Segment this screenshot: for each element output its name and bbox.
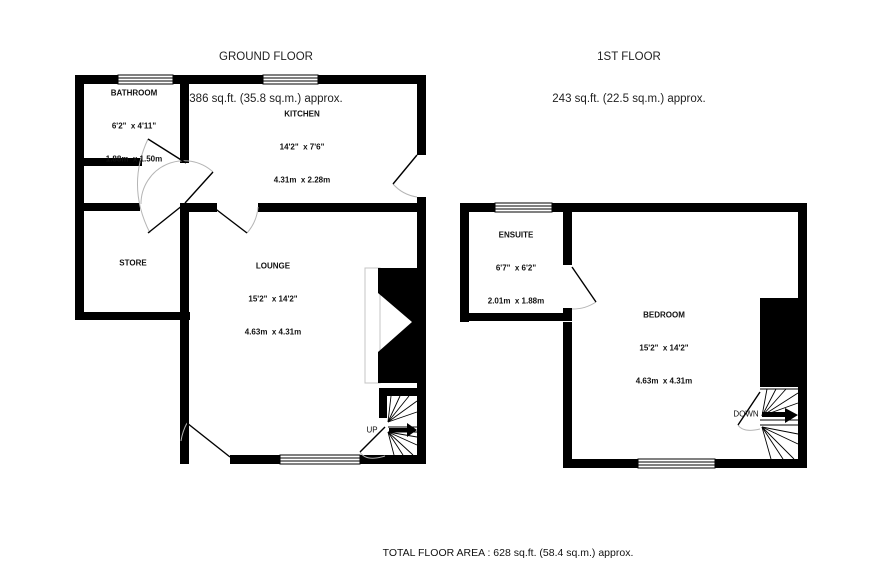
room-label-bedroom: BEDROOM 15'2" x 14'2" 4.63m x 4.31m — [636, 288, 692, 409]
stair-arrow-head — [407, 423, 417, 437]
room-label-store: STORE — [119, 236, 146, 291]
wall-ensuite-stub — [563, 308, 572, 321]
chimney-breast — [365, 268, 426, 383]
wall-left — [75, 75, 84, 320]
floorplan-page: GROUND FLOOR 386 sq.ft. (35.8 sq.m.) app… — [0, 0, 886, 574]
window — [263, 75, 318, 84]
wall-right-upper — [417, 75, 426, 155]
wall-bedroom-west — [563, 322, 572, 468]
chimney-breast — [760, 298, 798, 387]
room-dim-imperial: 14'2" x 7'6" — [274, 142, 330, 153]
wall-stair-top — [379, 388, 425, 396]
first-floor-title-text: 1ST FLOOR — [552, 50, 705, 64]
room-name: LOUNGE — [245, 261, 301, 272]
room-dim-metric: 4.63m x 4.31m — [245, 327, 301, 338]
room-dim-metric: 1.88m x 1.50m — [106, 154, 162, 165]
room-dim-metric: 2.01m x 1.88m — [488, 296, 544, 307]
wall-bathroom-divider — [180, 75, 189, 163]
wall-right — [798, 203, 807, 468]
chimney-solid — [378, 268, 426, 383]
wall-bottom-stub — [181, 455, 189, 464]
stair-arrow-head — [785, 408, 798, 423]
wall-store-bottom — [75, 312, 190, 320]
room-dim-imperial: 15'2" x 14'2" — [245, 294, 301, 305]
stair-label-down: DOWN — [733, 410, 758, 419]
stair-arrow-shaft — [762, 412, 785, 417]
wall-bottom-right — [360, 455, 425, 464]
footer: TOTAL FLOOR AREA : 628 sq.ft. (58.4 sq.m… — [383, 511, 634, 574]
window — [280, 455, 360, 464]
wall-bottom-right — [715, 459, 807, 468]
wall-bottom-left — [563, 459, 638, 468]
staircase-down — [760, 389, 798, 459]
room-dim-imperial: 15'2" x 14'2" — [636, 343, 692, 354]
wall-left — [460, 203, 469, 322]
wall-ensuite-right — [563, 203, 572, 265]
first-floor-area-text: 243 sq.ft. (22.5 sq.m.) approx. — [552, 92, 705, 106]
wall-lounge-west — [180, 203, 189, 464]
window — [638, 459, 715, 468]
room-label-lounge: LOUNGE 15'2" x 14'2" 4.63m x 4.31m — [245, 239, 301, 360]
hearth-outline — [365, 268, 380, 383]
room-label-kitchen: KITCHEN 14'2" x 7'6" 4.31m x 2.28m — [274, 87, 330, 208]
room-dim-imperial: 6'7" x 6'2" — [488, 263, 544, 274]
ground-floor-title-text: GROUND FLOOR — [189, 50, 342, 64]
first-floor-title: 1ST FLOOR 243 sq.ft. (22.5 sq.m.) approx… — [552, 22, 705, 134]
room-dim-metric: 4.63m x 4.31m — [636, 376, 692, 387]
room-label-ensuite: ENSUITE 6'7" x 6'2" 2.01m x 1.88m — [488, 208, 544, 329]
room-label-bathroom: BATHROOM 6'2" x 4'11" 1.88m x 1.50m — [106, 66, 162, 187]
wall-store-top — [75, 203, 140, 211]
stair-label-up: UP — [366, 426, 377, 435]
wall-bottom-left — [230, 455, 280, 464]
room-dim-imperial: 6'2" x 4'11" — [106, 121, 162, 132]
room-name: BEDROOM — [636, 310, 692, 321]
stair-arrow-shaft — [389, 428, 407, 432]
room-name: ENSUITE — [488, 230, 544, 241]
total-floor-area: TOTAL FLOOR AREA : 628 sq.ft. (58.4 sq.m… — [383, 547, 634, 559]
room-dim-metric: 4.31m x 2.28m — [274, 175, 330, 186]
room-name: STORE — [119, 258, 146, 269]
room-name: BATHROOM — [106, 88, 162, 99]
room-name: KITCHEN — [274, 109, 330, 120]
staircase-up — [388, 396, 417, 455]
